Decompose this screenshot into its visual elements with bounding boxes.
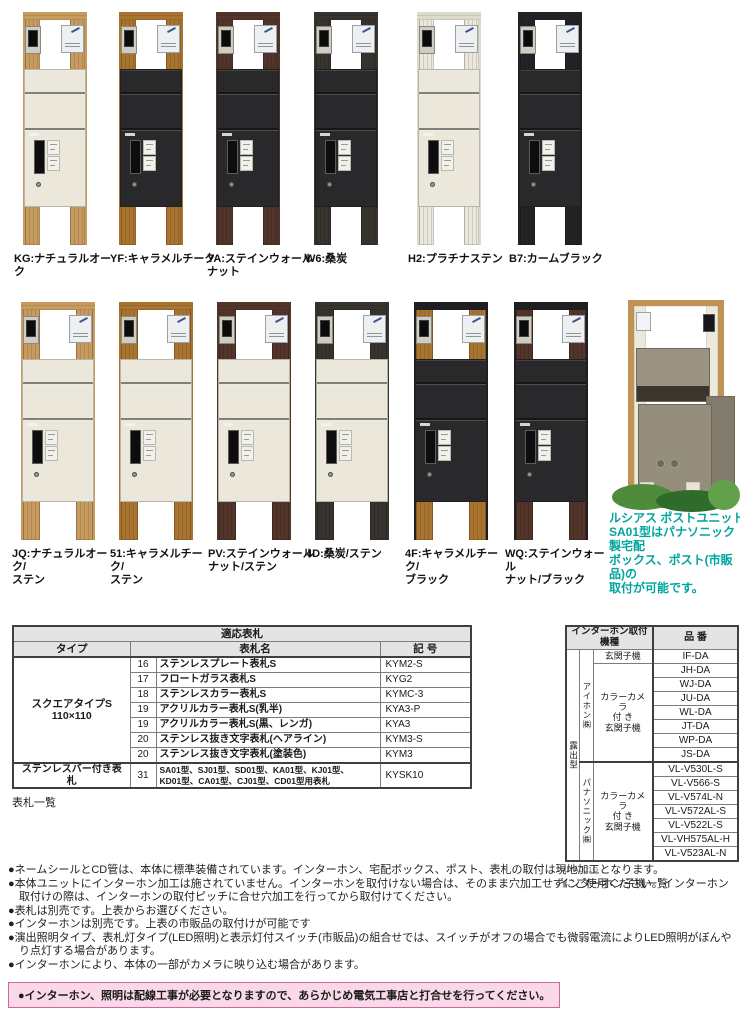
- intercom-unit: [23, 316, 39, 344]
- instruction-sticker: [438, 430, 451, 445]
- post-unit-4F: 4F:キャラメルチーク/ ブラック: [413, 302, 489, 540]
- nameplate-line: [269, 336, 284, 337]
- color-code-label: PV:ステインウォール ナット/ステン: [208, 548, 314, 574]
- mailbox-body: [22, 359, 94, 502]
- instruction-sticker: [339, 446, 352, 461]
- page-no: 18: [130, 688, 156, 703]
- unit-top-rail: [23, 12, 87, 20]
- intercom-screen: [124, 30, 134, 47]
- post-unit-YF: YF:キャラメルチーク: [118, 12, 184, 245]
- unit-top-rail: [314, 12, 378, 20]
- keyhole: [328, 472, 333, 477]
- intercom-unit: [516, 316, 532, 344]
- post-unit-51: 51:キャラメルチーク/ ステン: [118, 302, 194, 540]
- mail-slit: [121, 382, 191, 384]
- lock-panel: [228, 430, 239, 464]
- box-divider: [520, 128, 580, 130]
- part-number: VL-V566-S: [653, 776, 738, 790]
- instruction-sticker: [542, 140, 555, 155]
- nameplate-plate: [61, 25, 84, 53]
- instruction-sticker: [338, 140, 351, 155]
- nameplate-line: [466, 336, 481, 337]
- part-number: WP-DA: [653, 733, 738, 747]
- nameplate-line: [161, 46, 176, 47]
- box-label: [524, 133, 534, 136]
- instruction-sticker: [45, 430, 58, 445]
- nameplate-logo: [79, 317, 88, 323]
- type-cell: スクエアタイプS 110×110: [13, 657, 130, 763]
- lock-panel: [130, 140, 141, 174]
- plate-name: ステンレスカラー表札S: [156, 688, 380, 703]
- intercom-screen: [319, 30, 329, 47]
- maker-cell: アイホン㈱: [579, 649, 593, 762]
- color-code-label: JQ:ナチュラルオーク/ ステン: [12, 548, 118, 587]
- intercom-unit: [219, 316, 235, 344]
- unit-top-rail: [21, 302, 95, 310]
- nameplate-plate: [352, 25, 375, 53]
- instruction-sticker: [339, 430, 352, 445]
- mailbox-body: [218, 359, 290, 502]
- box-divider: [416, 418, 486, 420]
- nameplate-logo: [572, 317, 581, 323]
- color-code-label: H2:プラチナステン: [408, 253, 514, 266]
- box-label: [423, 133, 433, 136]
- nameplate-plate: [254, 25, 277, 53]
- keyhole: [132, 472, 137, 477]
- photo-mail-panel: [636, 348, 710, 402]
- note-item: ●インターホンにより、本体の一部がカメラに映り込む場合があります。: [8, 959, 736, 973]
- intercom-unit: [25, 26, 41, 54]
- photo-caption: ルシアス ポストユニット SA01型はパナソニック製宅配 ボックス、ポスト(市販…: [609, 511, 740, 595]
- unit-top-rail: [518, 12, 582, 20]
- mailbox-body: [217, 69, 279, 207]
- intercom-screen: [124, 320, 134, 337]
- box-divider: [121, 128, 181, 130]
- note-item: ●表札は別売です。上表からお選びください。: [8, 905, 736, 919]
- intercom-screen: [221, 30, 231, 47]
- nameplate-line: [161, 43, 176, 44]
- intercom-unit: [121, 26, 137, 54]
- table-row: ステンレスバー付き表札 31 SA01型、SJ01型、SD01型、KA01型、K…: [13, 763, 471, 788]
- color-code-label: WQ:ステインウォール ナット/ブラック: [505, 548, 611, 587]
- instruction-sticker: [338, 156, 351, 171]
- post-unit-KG: KG:ナチュラルオーク: [22, 12, 88, 245]
- mail-slit: [219, 382, 289, 384]
- keyhole: [327, 182, 332, 187]
- mail-slit: [419, 92, 479, 94]
- mailbox-body: [519, 69, 581, 207]
- page-no: 20: [130, 748, 156, 764]
- note-item: ●インターホンは別売です。上表の市販品の取付けが可能です: [8, 918, 736, 932]
- post-unit-YA: YA:ステインウォール ナット: [215, 12, 281, 245]
- intercom-unit: [419, 26, 435, 54]
- lock-panel: [529, 140, 540, 174]
- nameplate-logo: [566, 27, 575, 33]
- part-number: JH-DA: [653, 663, 738, 677]
- nameplate-plate: [265, 315, 288, 343]
- color-code-label: W6:桑炭: [305, 253, 411, 266]
- part-number: WJ-DA: [653, 677, 738, 691]
- warning-box: ●インターホン、照明は配線工事が必要となりますので、あらかじめ電気工事店と打合せ…: [8, 982, 560, 1008]
- intercom-unit: [520, 26, 536, 54]
- nameplate-logo: [264, 27, 273, 33]
- post-unit-WQ: WQ:ステインウォール ナット/ブラック: [513, 302, 589, 540]
- box-divider: [121, 418, 191, 420]
- part-number: VL-VH575AL-H: [653, 832, 738, 846]
- unit-top-rail: [119, 12, 183, 20]
- plate-code: KYM3: [380, 748, 471, 764]
- nameplate-logo: [71, 27, 80, 33]
- box-divider: [516, 418, 586, 420]
- plate-code: KYSK10: [380, 763, 471, 788]
- mail-slit: [25, 92, 85, 94]
- box-divider: [25, 128, 85, 130]
- catalog-page: KG:ナチュラルオーク YF:キャラメルチーク: [0, 0, 740, 1016]
- instruction-sticker: [143, 156, 156, 171]
- nameplate-plate: [556, 25, 579, 53]
- box-label: [222, 133, 232, 136]
- box-label: [320, 133, 330, 136]
- unit-top-rail: [417, 12, 481, 20]
- nameplate-logo: [362, 27, 371, 33]
- plate-code: KYM3-S: [380, 733, 471, 748]
- nameplate-line: [560, 43, 575, 44]
- mail-slit: [416, 382, 486, 384]
- mailbox-body: [24, 69, 86, 207]
- lock-panel: [425, 430, 436, 464]
- box-label: [29, 133, 39, 136]
- plate-code: KYA3: [380, 718, 471, 733]
- nameplate-logo: [177, 317, 186, 323]
- color-code-label: 4D:桑炭/ステン: [306, 548, 412, 561]
- nameplate-line: [73, 336, 88, 337]
- nameplate-line: [459, 43, 474, 44]
- nameplate-line: [367, 336, 382, 337]
- instruction-sticker: [143, 430, 156, 445]
- instruction-sticker: [47, 140, 60, 155]
- note-item: ●本体ユニットにインターホン加工は施されていません。インターホンを取付けない場合…: [8, 878, 736, 905]
- part-number: JT-DA: [653, 719, 738, 733]
- part-number: VL-V574L-N: [653, 790, 738, 804]
- plate-name: アクリルカラー表札S(黒、レンガ): [156, 718, 380, 733]
- page-no: 17: [130, 673, 156, 688]
- nameplate-logo: [275, 317, 284, 323]
- color-code-label: YA:ステインウォール ナット: [207, 253, 313, 279]
- col-name: 表札名: [130, 642, 380, 658]
- mailbox-body: [120, 69, 182, 207]
- part-number: VL-V523AL-N: [653, 846, 738, 861]
- nameplate-plate: [455, 25, 478, 53]
- unit-top-rail: [119, 302, 193, 310]
- nameplate-line: [65, 43, 80, 44]
- nameplate-plate: [363, 315, 386, 343]
- color-code-label: 51:キャラメルチーク/ ステン: [110, 548, 216, 587]
- instruction-sticker: [538, 446, 551, 461]
- nameplate-logo: [472, 317, 481, 323]
- part-number: VL-V522L-S: [653, 818, 738, 832]
- mailbox-body: [515, 359, 587, 502]
- nameplate-line: [566, 336, 581, 337]
- post-unit-W6: W6:桑炭: [313, 12, 379, 245]
- part-number: WL-DA: [653, 705, 738, 719]
- color-code-label: YF:キャラメルチーク: [110, 253, 216, 266]
- keyhole: [230, 472, 235, 477]
- keyhole: [34, 472, 39, 477]
- lock-panel: [227, 140, 238, 174]
- intercom-table-block: インターホン取付機種 品 番 露出型 アイホン㈱ 玄関子機 IF-DA カラーカ…: [558, 625, 739, 891]
- type-cell: ステンレスバー付き表札: [13, 763, 130, 788]
- intercom-table-title: インターホン取付機種: [566, 626, 653, 649]
- photo-mail-slot: [637, 386, 709, 401]
- mailbox-body: [415, 359, 487, 502]
- nameplate-line: [65, 46, 80, 47]
- col-code: 記 号: [380, 642, 471, 658]
- intercom-unit: [316, 26, 332, 54]
- page-no: 20: [130, 733, 156, 748]
- nameplate-logo: [373, 317, 382, 323]
- part-number: IF-DA: [653, 649, 738, 663]
- mailbox-body: [315, 69, 377, 207]
- box-divider: [419, 128, 479, 130]
- plate-name: ステンレス抜き文字表札(塗装色): [156, 748, 380, 764]
- maker-cell: パナソニック㈱: [579, 762, 593, 861]
- instruction-sticker: [542, 156, 555, 171]
- intercom-screen: [419, 320, 429, 337]
- table-row: スクエアタイプS 110×110 16 ステンレスプレート表札S KYM2-S: [13, 657, 471, 673]
- col-type: タイプ: [13, 642, 130, 658]
- lock-panel: [325, 140, 336, 174]
- plate-code: KYMC-3: [380, 688, 471, 703]
- table-row: 露出型 アイホン㈱ 玄関子機 IF-DA: [566, 649, 738, 663]
- nameplate-line: [367, 333, 382, 334]
- nameplate-line: [258, 43, 273, 44]
- mail-slit: [520, 92, 580, 94]
- lock-panel: [130, 430, 141, 464]
- instruction-sticker: [441, 140, 454, 155]
- instruction-sticker: [240, 140, 253, 155]
- station-type-cell: 玄関子機: [593, 649, 653, 663]
- box-divider: [316, 128, 376, 130]
- keyhole: [132, 182, 137, 187]
- mail-slit: [516, 382, 586, 384]
- intercom-unit: [317, 316, 333, 344]
- nameplate-plate: [69, 315, 92, 343]
- nameplate-logo: [167, 27, 176, 33]
- box-label: [520, 423, 530, 426]
- nameplate-plate: [462, 315, 485, 343]
- instruction-sticker: [241, 446, 254, 461]
- station-type-cell: カラーカメラ 付 き 玄関子機: [593, 762, 653, 861]
- plate-code: KYA3-P: [380, 703, 471, 718]
- mail-slit: [218, 92, 278, 94]
- box-label: [420, 423, 430, 426]
- instruction-sticker: [441, 156, 454, 171]
- table-header-row: インターホン取付機種 品 番: [566, 626, 738, 649]
- post-unit-PV: PV:ステインウォール ナット/ステン: [216, 302, 292, 540]
- plate-name: フロートガラス表札S: [156, 673, 380, 688]
- nameplate-line: [73, 333, 88, 334]
- box-label: [125, 423, 135, 426]
- unit-top-rail: [514, 302, 588, 310]
- nameplate-line: [171, 333, 186, 334]
- plate-name: アクリルカラー表札S(乳半): [156, 703, 380, 718]
- intercom-screen: [519, 320, 529, 337]
- table-header-row: タイプ 表札名 記 号: [13, 642, 471, 658]
- nameplate-line: [269, 333, 284, 334]
- intercom-screen: [222, 320, 232, 337]
- mail-slit: [317, 382, 387, 384]
- keyhole: [430, 182, 435, 187]
- nameplate-line: [560, 46, 575, 47]
- intercom-screen: [320, 320, 330, 337]
- nameplate-table: 適応表札 タイプ 表札名 記 号 スクエアタイプS 110×110 16 ステン…: [12, 625, 472, 789]
- nameplate-plate: [562, 315, 585, 343]
- nameplate-line: [171, 336, 186, 337]
- intercom-screen: [523, 30, 533, 47]
- box-label: [321, 423, 331, 426]
- plate-code: KYG2: [380, 673, 471, 688]
- note-item: ●ネームシールとCD管は、本体に標準装備されています。インターホン、宅配ボックス…: [8, 864, 736, 878]
- table-title-row: 適応表札: [13, 626, 471, 642]
- keyhole: [527, 472, 532, 477]
- nameplate-line: [258, 46, 273, 47]
- color-code-label: KG:ナチュラルオーク: [14, 253, 120, 279]
- instruction-sticker: [240, 156, 253, 171]
- box-divider: [218, 128, 278, 130]
- unit-top-rail: [217, 302, 291, 310]
- part-number: JS-DA: [653, 747, 738, 762]
- intercom-table: インターホン取付機種 品 番 露出型 アイホン㈱ 玄関子機 IF-DA カラーカ…: [565, 625, 739, 862]
- table-row: パナソニック㈱ カラーカメラ 付 き 玄関子機 VL-V530L-S: [566, 762, 738, 777]
- sa01-product-photo: [612, 298, 740, 512]
- instruction-sticker: [438, 446, 451, 461]
- post-unit-JQ: JQ:ナチュラルオーク/ ステン: [20, 302, 96, 540]
- keyhole: [427, 472, 432, 477]
- keyhole: [36, 182, 41, 187]
- intercom-screen: [422, 30, 432, 47]
- color-code-label: B7:カームブラック: [509, 253, 615, 266]
- post-unit-B7: B7:カームブラック: [517, 12, 583, 245]
- note-item: ●演出照明タイプ、表札灯タイプ(LED照明)と表示灯付スイッチ(市販品)の組合せ…: [8, 932, 736, 959]
- box-divider: [219, 418, 289, 420]
- mailbox-body: [120, 359, 192, 502]
- instruction-sticker: [47, 156, 60, 171]
- nameplate-line: [459, 46, 474, 47]
- box-label: [223, 423, 233, 426]
- lock-panel: [34, 140, 45, 174]
- lock-panel: [525, 430, 536, 464]
- mailbox-body: [418, 69, 480, 207]
- instruction-sticker: [45, 446, 58, 461]
- mailbox-body: [316, 359, 388, 502]
- page-no: 16: [130, 657, 156, 673]
- part-number: JU-DA: [653, 691, 738, 705]
- nameplate-line: [356, 43, 371, 44]
- page-no: 31: [130, 763, 156, 788]
- plate-code: KYM2-S: [380, 657, 471, 673]
- mount-type-cell: 露出型: [566, 649, 579, 861]
- instruction-sticker: [538, 430, 551, 445]
- instruction-sticker: [241, 430, 254, 445]
- dial-knob: [670, 459, 679, 468]
- intercom-unit: [218, 26, 234, 54]
- station-type-cell: カラーカメラ 付 き 玄関子機: [593, 663, 653, 762]
- intercom-screen: [26, 320, 36, 337]
- unit-top-rail: [414, 302, 488, 310]
- page-no: 19: [130, 718, 156, 733]
- lock-panel: [32, 430, 43, 464]
- nameplate-table-title: 適応表札: [13, 626, 471, 642]
- nameplate-line: [466, 333, 481, 334]
- instruction-sticker: [143, 446, 156, 461]
- box-divider: [23, 418, 93, 420]
- nameplate-line: [356, 46, 371, 47]
- part-number: VL-V572AL-S: [653, 804, 738, 818]
- photo-nameplate: [636, 312, 651, 331]
- plate-name: SA01型、SJ01型、SD01型、KA01型、KJ01型、 KD01型、CA0…: [156, 763, 380, 788]
- mail-slit: [316, 92, 376, 94]
- lock-panel: [326, 430, 337, 464]
- keyhole: [229, 182, 234, 187]
- lock-panel: [428, 140, 439, 174]
- box-divider: [317, 418, 387, 420]
- mail-slit: [23, 382, 93, 384]
- plate-name: ステンレス抜き文字表札(ヘアライン): [156, 733, 380, 748]
- instruction-sticker: [143, 140, 156, 155]
- keyhole: [531, 182, 536, 187]
- intercom-screen: [28, 30, 38, 47]
- color-code-label: 4F:キャラメルチーク/ ブラック: [405, 548, 511, 587]
- greenery: [708, 480, 740, 510]
- nameplate-line: [566, 333, 581, 334]
- nameplate-table-block: 適応表札 タイプ 表札名 記 号 スクエアタイプS 110×110 16 ステン…: [12, 625, 472, 810]
- post-unit-H2: H2:プラチナステン: [416, 12, 482, 245]
- plate-name: ステンレスプレート表札S: [156, 657, 380, 673]
- unit-top-rail: [216, 12, 280, 20]
- nameplate-table-caption: 表札一覧: [12, 794, 472, 810]
- box-label: [27, 423, 37, 426]
- part-number: VL-V530L-S: [653, 762, 738, 777]
- nameplate-logo: [465, 27, 474, 33]
- box-label: [125, 133, 135, 136]
- col-part-number: 品 番: [653, 626, 738, 649]
- intercom-unit: [416, 316, 432, 344]
- intercom-unit: [121, 316, 137, 344]
- page-no: 19: [130, 703, 156, 718]
- mail-slit: [121, 92, 181, 94]
- photo-intercom: [703, 314, 715, 332]
- unit-top-rail: [315, 302, 389, 310]
- post-unit-4D: 4D:桑炭/ステン: [314, 302, 390, 540]
- footnotes: ●ネームシールとCD管は、本体に標準装備されています。インターホン、宅配ボックス…: [8, 864, 736, 1008]
- dial-knob: [656, 459, 665, 468]
- nameplate-plate: [157, 25, 180, 53]
- nameplate-plate: [167, 315, 190, 343]
